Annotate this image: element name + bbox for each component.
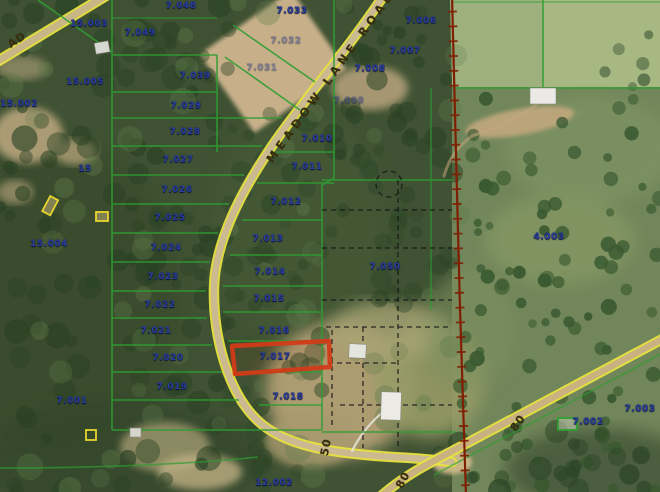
map-canvas[interactable] xyxy=(0,0,660,492)
green-marker-icon xyxy=(558,418,577,430)
parcel-map-view[interactable]: 15.0037.0487.0497.0337.0327.0317.0067.00… xyxy=(0,0,660,492)
yellow-marker-icon xyxy=(96,212,108,221)
selected-parcel-highlight[interactable] xyxy=(232,341,330,374)
